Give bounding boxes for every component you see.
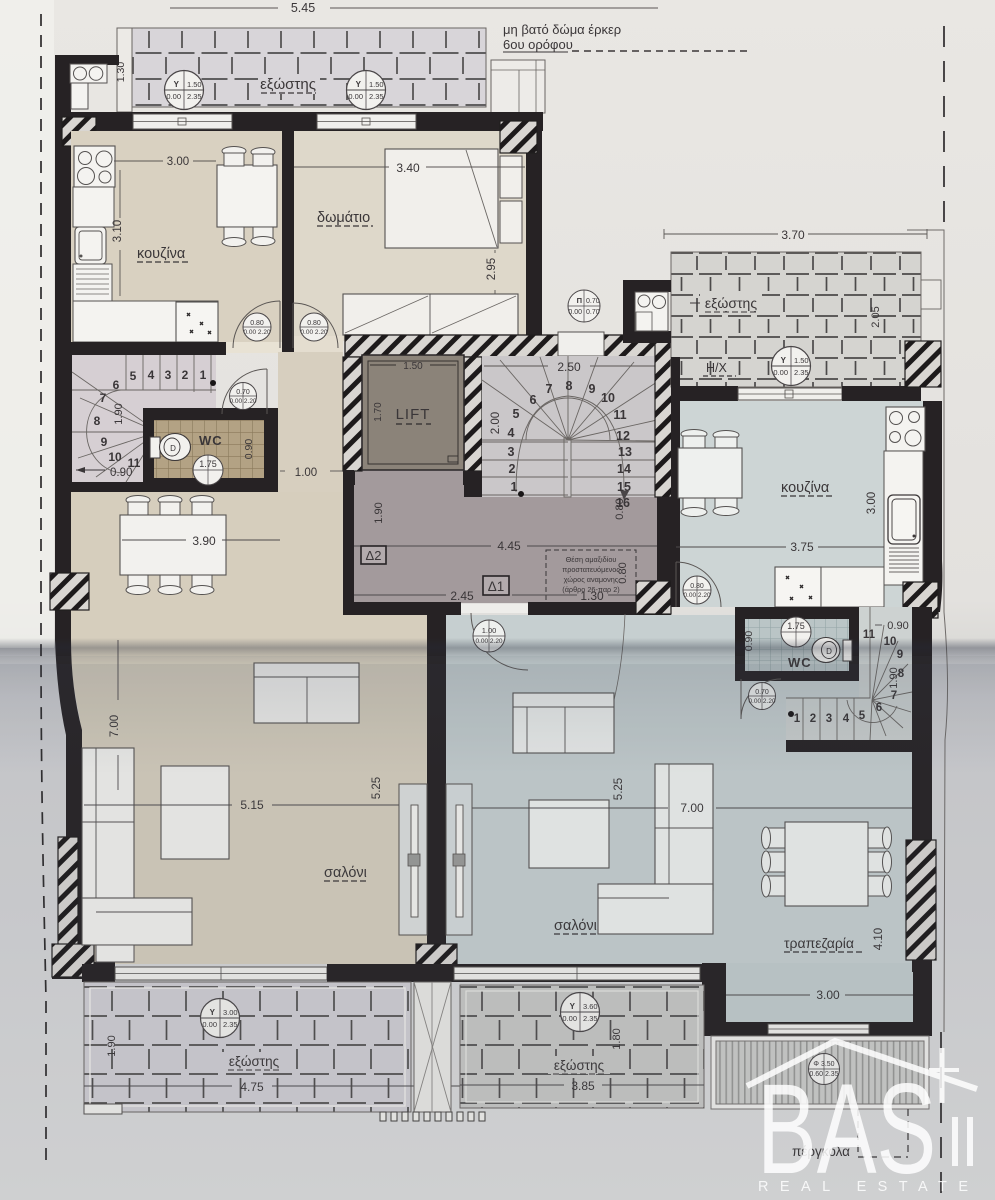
svg-text:0.00 2.20: 0.00 2.20 [229,398,256,405]
svg-text:0.80: 0.80 [307,320,321,327]
svg-text:δωμάτιο: δωμάτιο [317,210,370,226]
svg-text:0.90: 0.90 [887,620,908,632]
svg-text:1.50: 1.50 [794,356,809,365]
svg-text:Η/Χ: Η/Χ [706,361,728,375]
svg-text:1.90: 1.90 [113,403,125,424]
svg-text:9: 9 [589,382,596,396]
svg-text:2.00: 2.00 [490,412,502,434]
svg-text:0.00: 0.00 [348,92,363,101]
svg-text:Π: Π [577,296,582,305]
svg-text:7: 7 [546,382,553,396]
svg-text:6: 6 [530,393,537,407]
svg-text:2.35: 2.35 [187,92,202,101]
svg-text:1.75: 1.75 [199,459,217,469]
svg-text:5.45: 5.45 [291,1,315,15]
svg-text:Δ1: Δ1 [488,579,505,594]
svg-text:0.80: 0.80 [690,583,704,590]
svg-text:χώρος αναμονης: χώρος αναμονης [564,575,619,584]
svg-text:1: 1 [511,480,518,494]
svg-text:4: 4 [508,426,515,440]
svg-text:1.50: 1.50 [369,80,384,89]
svg-text:1.30: 1.30 [580,589,604,603]
svg-text:κουζίνα: κουζίνα [781,480,829,496]
svg-text:5: 5 [513,407,520,421]
svg-text:3.70: 3.70 [781,228,805,242]
svg-text:Δ2: Δ2 [366,548,382,563]
svg-text:7: 7 [100,391,107,405]
svg-text:LIFT: LIFT [396,406,431,423]
svg-text:11: 11 [613,408,626,422]
svg-text:0.00: 0.00 [166,92,181,101]
svg-text:0.00 2.20: 0.00 2.20 [300,329,327,336]
svg-text:Y: Y [356,80,362,89]
svg-text:3.00: 3.00 [866,492,878,514]
svg-text:Y: Y [781,356,787,365]
svg-text:13: 13 [618,445,632,459]
svg-text:D: D [170,444,176,453]
svg-text:1.50: 1.50 [403,361,423,372]
svg-text:0.70: 0.70 [236,389,250,396]
svg-text:6: 6 [113,378,120,392]
svg-text:1.00: 1.00 [482,626,497,635]
svg-text:1.00: 1.00 [295,467,317,479]
svg-text:εξώστης: εξώστης [705,295,757,311]
svg-text:2.50: 2.50 [557,360,581,374]
svg-text:14: 14 [617,462,631,476]
svg-text:15: 15 [617,480,631,494]
svg-text:0.80: 0.80 [617,562,629,583]
svg-text:6ου ορόφου: 6ου ορόφου [503,37,573,52]
svg-text:Θέση αμαξιδίου: Θέση αμαξιδίου [566,555,617,564]
svg-text:0.90: 0.90 [110,467,132,479]
svg-text:Y: Y [174,80,180,89]
svg-text:10: 10 [108,450,122,464]
svg-text:0.80: 0.80 [250,320,264,327]
svg-text:1: 1 [200,368,207,382]
svg-text:3.00: 3.00 [167,156,189,168]
svg-text:2.05: 2.05 [870,306,882,327]
svg-text:μη βατό δώμα έρκερ: μη βατό δώμα έρκερ [503,22,621,37]
svg-text:3: 3 [165,368,172,382]
svg-text:8: 8 [566,379,573,393]
svg-text:10: 10 [601,391,615,405]
svg-text:1.90: 1.90 [373,502,385,523]
svg-text:1.50: 1.50 [187,80,202,89]
svg-text:0.00 2.20: 0.00 2.20 [243,329,270,336]
svg-text:1.70: 1.70 [373,402,384,422]
svg-text:2.45: 2.45 [450,589,474,603]
svg-text:REAL ESTATE: REAL ESTATE [758,1179,977,1195]
svg-text:4.45: 4.45 [497,539,521,553]
svg-text:κουζίνα: κουζίνα [137,246,185,262]
svg-text:2: 2 [509,462,516,476]
svg-text:προστατευόμενος: προστατευόμενος [562,565,620,574]
svg-text:0.70: 0.70 [586,309,600,316]
svg-text:3: 3 [508,445,515,459]
svg-text:2.35: 2.35 [794,368,809,377]
svg-text:WC: WC [199,433,223,448]
svg-text:2.95: 2.95 [486,258,498,280]
svg-text:εξώστης: εξώστης [260,76,316,93]
svg-text:3.10: 3.10 [112,220,124,242]
svg-text:0.90: 0.90 [243,439,255,460]
svg-text:3.90: 3.90 [192,534,216,548]
svg-text:8: 8 [94,414,101,428]
svg-text:9: 9 [101,435,108,449]
svg-text:4: 4 [148,368,155,382]
svg-text:3.75: 3.75 [790,540,814,554]
svg-text:1.75: 1.75 [787,621,805,631]
svg-text:2: 2 [182,368,189,382]
svg-text:2.35: 2.35 [369,92,384,101]
svg-text:0.70: 0.70 [586,298,600,305]
svg-text:0.00 2.20: 0.00 2.20 [683,592,710,599]
svg-text:12: 12 [616,429,630,443]
svg-text:5: 5 [130,369,137,383]
svg-text:0.00: 0.00 [568,309,582,316]
svg-text:0.80: 0.80 [614,498,626,519]
svg-text:3.40: 3.40 [396,161,420,175]
svg-text:0.00: 0.00 [773,368,788,377]
